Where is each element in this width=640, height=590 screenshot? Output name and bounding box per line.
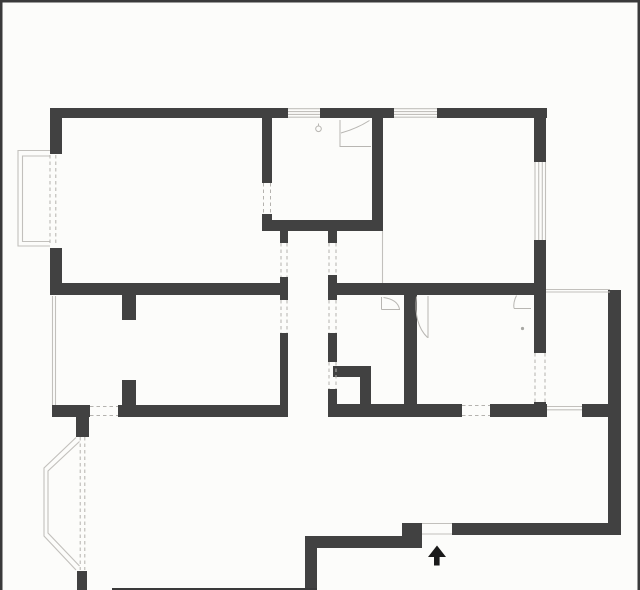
wall-alcove-top: [333, 366, 371, 377]
wall-topright-room-upper: [534, 118, 546, 162]
frame-top: [0, 0, 640, 3]
wall-divider-left: [52, 283, 287, 295]
wall-bay-stub-top: [76, 417, 89, 437]
frame-left: [0, 0, 3, 590]
entry-arrow-head: [428, 546, 446, 558]
ceiling-dot: [521, 327, 524, 330]
wall-partition-stub-b: [122, 380, 136, 405]
wall-partition-stub-a: [122, 295, 136, 320]
wall-alcove-right: [360, 377, 371, 405]
balcony-outline-outer: [44, 438, 76, 571]
door-swing-room-c: [514, 296, 531, 309]
wall-corridor-right-a: [328, 231, 337, 243]
wall-bottom-middle-vertical: [404, 295, 417, 405]
wall-top-a: [50, 108, 288, 118]
wall-left-upper: [50, 108, 62, 154]
wall-divider-right: [328, 283, 546, 295]
wall-bottom-b: [118, 405, 288, 417]
wall-entry-down: [305, 536, 317, 590]
door-swing-room-b: [416, 296, 428, 338]
wall-kitchen-right: [372, 118, 383, 231]
wall-entry-right: [452, 523, 608, 535]
wall-corridor-right-b: [328, 275, 337, 300]
wall-bottom-c: [328, 404, 462, 417]
wall-bottom-a: [52, 405, 90, 417]
wall-corridor-left-c: [280, 333, 288, 412]
wall-entry-step: [402, 523, 422, 548]
door-swing-kitchen: [340, 120, 371, 147]
floor-plan-canvas: [0, 0, 640, 590]
wall-corridor-left-b: [280, 277, 288, 300]
wall-right-vertical-upper: [534, 295, 546, 353]
entry-arrow-stem: [434, 557, 440, 566]
wall-bottom-d: [490, 404, 547, 417]
wall-kitchen-bottom: [262, 220, 383, 231]
wall-bay-stub-bottom: [77, 571, 87, 590]
wall-entry-left: [305, 536, 402, 548]
wall-kitchen-left-upper: [262, 118, 272, 183]
door-swing-room-a: [382, 297, 401, 310]
floor-plan: [0, 0, 640, 590]
wall-top-c: [437, 108, 547, 118]
kitchen-fixture: [316, 126, 322, 132]
wall-top-b: [320, 108, 394, 118]
wall-outer-right: [608, 290, 621, 535]
wall-corridor-left-a: [280, 230, 288, 243]
wall-corridor-right-c: [328, 333, 337, 362]
bay-window-outline-inner: [23, 156, 51, 242]
